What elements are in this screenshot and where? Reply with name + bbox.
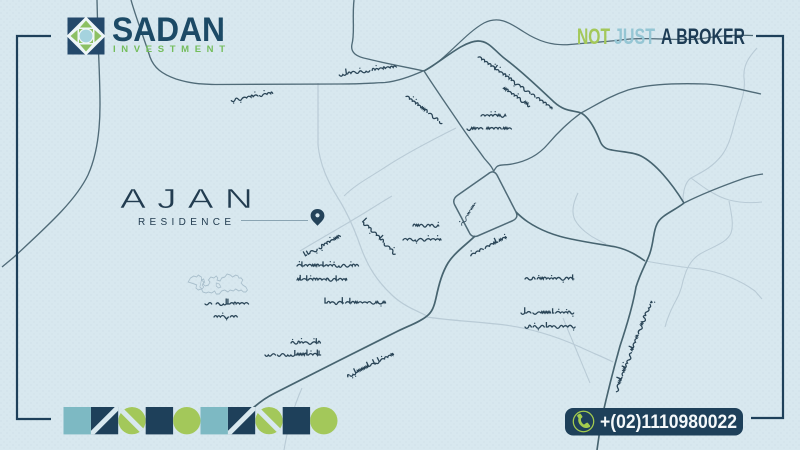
svg-text:+(02)1110980022: +(02)1110980022	[600, 412, 737, 433]
svg-text:NOT: NOT	[577, 24, 610, 49]
svg-text:RESIDENCE: RESIDENCE	[138, 217, 231, 228]
svg-text:JUST: JUST	[614, 24, 655, 49]
svg-text:AJAN: AJAN	[120, 183, 264, 214]
svg-text:A BROKER: A BROKER	[661, 24, 745, 49]
